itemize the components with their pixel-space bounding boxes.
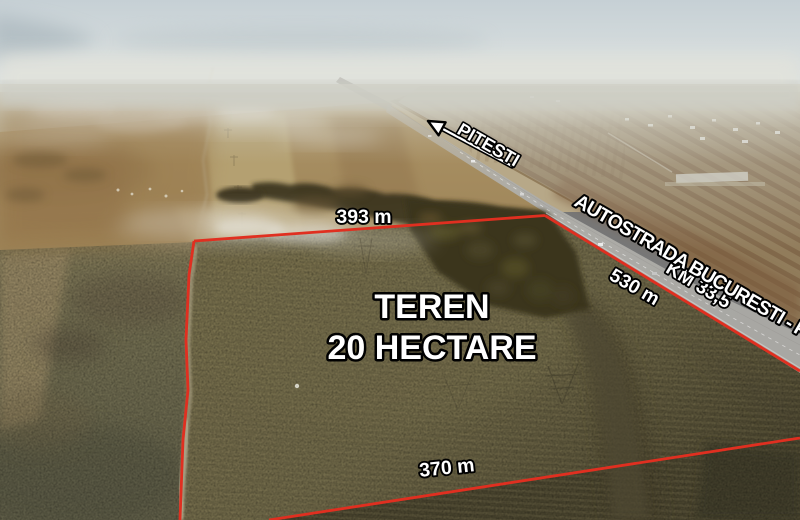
svg-text:393 m: 393 m xyxy=(336,206,391,228)
svg-text:20 HECTARE: 20 HECTARE xyxy=(327,329,536,367)
svg-text:TEREN: TEREN xyxy=(374,288,489,326)
